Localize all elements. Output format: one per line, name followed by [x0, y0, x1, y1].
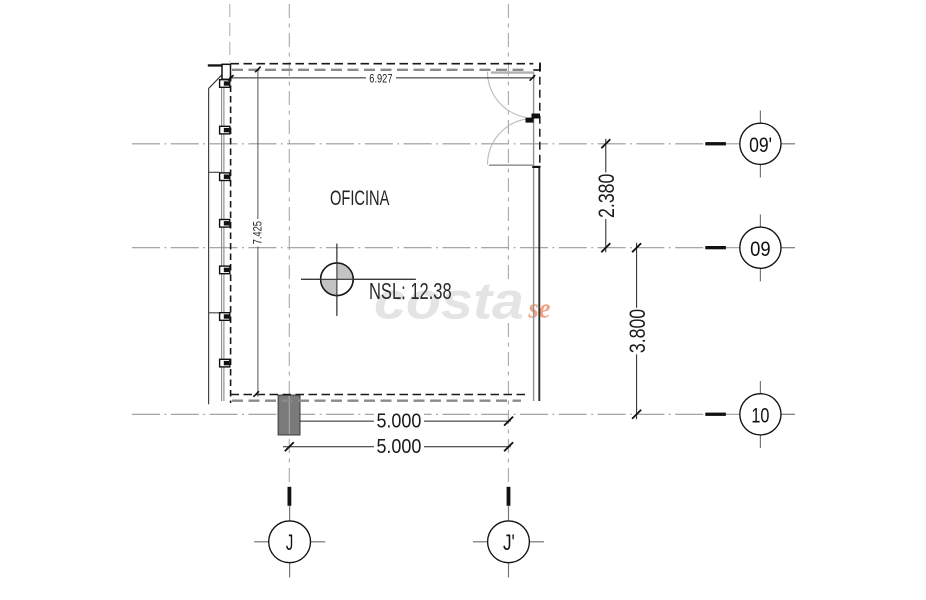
svg-text:10: 10 — [751, 403, 769, 427]
svg-text:OFICINA: OFICINA — [330, 186, 390, 210]
svg-text:J: J — [286, 530, 293, 555]
svg-text:09': 09' — [749, 133, 772, 157]
svg-text:NSL: 12.38: NSL: 12.38 — [369, 278, 452, 304]
svg-text:6.927: 6.927 — [369, 72, 392, 86]
svg-text:09: 09 — [750, 237, 771, 261]
svg-text:3.800: 3.800 — [625, 309, 650, 353]
svg-text:J': J' — [503, 530, 515, 555]
svg-text:7.425: 7.425 — [251, 221, 265, 245]
svg-text:5.000: 5.000 — [376, 410, 421, 433]
svg-text:2.380: 2.380 — [594, 174, 619, 218]
svg-text:5.000: 5.000 — [376, 435, 421, 458]
